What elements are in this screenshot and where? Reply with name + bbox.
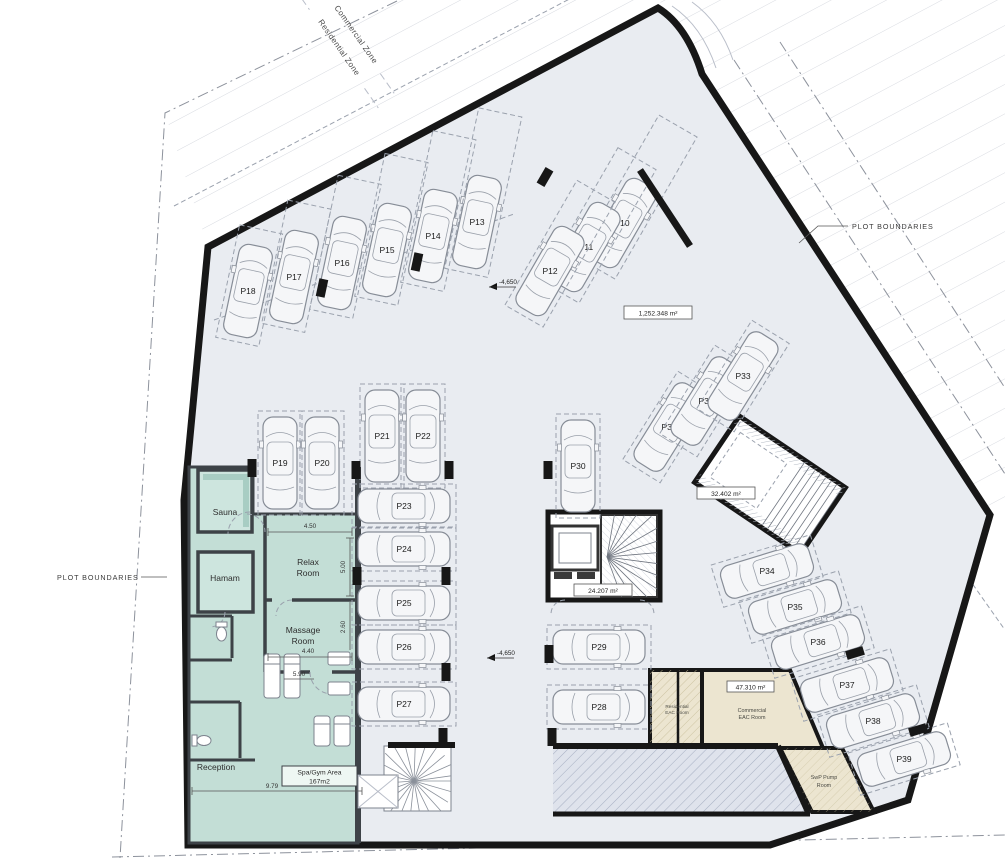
parking-spot-label: P39 [896,754,911,764]
parking-spot-label: P21 [374,431,389,441]
column [548,728,557,746]
elevator-car [559,533,591,563]
column [442,663,451,681]
svg-text:-4,650: -4,650 [499,279,517,286]
parking-spot-P20: P20 [300,411,344,515]
parking-spot-label: P35 [787,602,802,612]
parking-spot-P28: P28 [547,685,651,729]
svg-text:-4,650: -4,650 [497,650,515,657]
parking-spot-P19: P19 [258,411,302,515]
parking-spot-label: P24 [396,544,411,554]
parking-spot-label: P13 [469,217,484,227]
massage-room-label-2: Room [292,636,315,646]
parking-spot-label: P27 [396,699,411,709]
parking-spot-P21: P21 [360,384,404,488]
svg-text:4.40: 4.40 [302,648,315,655]
parking-spot-label: P33 [735,371,750,381]
parking-spot-label: P18 [240,286,255,296]
svg-text:47.310 m²: 47.310 m² [736,685,766,692]
parking-spot-label: P38 [865,716,880,726]
residential-eac-label-2: EAC Room [665,710,689,715]
parking-spot-label: P26 [396,642,411,652]
core-center-area-label: 24.207 m² [574,584,632,596]
svg-text:24.207 m²: 24.207 m² [588,588,618,595]
parking-spot-label: P28 [591,702,606,712]
floor-plan-drawing: P10P11P12P13P14P15P16P17P18P19P20P21P22P… [0,0,1005,861]
parking-spot-P26: P26 [352,625,456,669]
svg-text:5.00: 5.00 [340,560,347,573]
parking-spot-label: P34 [759,566,774,576]
swp-pump-label-1: SwP Pump [811,775,838,781]
column [445,461,454,479]
parking-spot-label: P16 [334,258,349,268]
reception-label: Reception [197,762,236,772]
commercial-eac-label-1: Commercial [738,708,767,714]
parking-spot-label: P14 [425,231,440,241]
spa-gym-area-label: Spa/Gym Area 167m2 [282,766,357,786]
parking-spot-label: P37 [839,680,854,690]
relax-room-label-2: Room [297,568,320,578]
column [353,567,362,585]
parking-spot-label: P30 [570,461,585,471]
parking-spot-P24: P24 [352,527,456,571]
parking-spot-P30: P30 [556,414,600,518]
parking-spot-label: P17 [286,272,301,282]
sauna-label: Sauna [213,507,238,517]
residential-eac-label-1: Residential [665,704,688,709]
column [439,728,448,746]
parking-spot-P25: P25 [352,581,456,625]
svg-text:167m2: 167m2 [309,779,330,786]
core-center [548,498,667,614]
parking-spot-P29: P29 [547,625,651,669]
hamam-label: Hamam [210,573,240,583]
parking-spot-label: P36 [810,637,825,647]
parking-spot-label: P15 [379,245,394,255]
total-area-label: 1,252.348 m² [624,306,692,319]
parking-spot-label: P25 [396,598,411,608]
plot-boundaries-right-label: PLOT BOUNDARIES [852,222,934,231]
relax-room-label-1: Relax [297,557,319,567]
parking-spot-P23: P23 [352,484,456,528]
commercial-eac-label-2: EAC Room [739,715,766,721]
column [352,461,361,479]
commercial-eac-area-label: 47.310 m² [727,681,774,692]
parking-spot-label: P22 [415,431,430,441]
column [544,461,553,479]
column [442,567,451,585]
parking-spot-label: P20 [314,458,329,468]
swp-pump-label-2: Room [817,783,832,789]
svg-text:Spa/Gym Area: Spa/Gym Area [297,770,341,777]
parking-spot-label: P12 [542,266,557,276]
core-right-area-label: 32.402 m² [697,487,755,499]
svg-text:9.79: 9.79 [266,783,279,790]
svg-text:2.60: 2.60 [340,620,347,633]
svg-text:5.90: 5.90 [293,671,306,678]
plot-boundaries-left-label: PLOT BOUNDARIES [57,573,139,582]
svg-text:1,252.348 m²: 1,252.348 m² [639,311,679,318]
floor-plan-page: P10P11P12P13P14P15P16P17P18P19P20P21P22P… [0,0,1005,861]
parking-spot-label: P19 [272,458,287,468]
ramp [553,746,810,814]
parking-spot-label: P29 [591,642,606,652]
parking-spot-P22: P22 [401,384,445,488]
column [545,645,554,663]
parking-spot-label: P23 [396,501,411,511]
plot-boundaries-left: PLOT BOUNDARIES [57,573,167,582]
svg-text:32.402 m²: 32.402 m² [711,491,741,498]
column [248,459,257,477]
svg-text:4.50: 4.50 [304,523,317,530]
parking-spot-P27: P27 [352,682,456,726]
massage-room-label-1: Massage [286,625,321,635]
